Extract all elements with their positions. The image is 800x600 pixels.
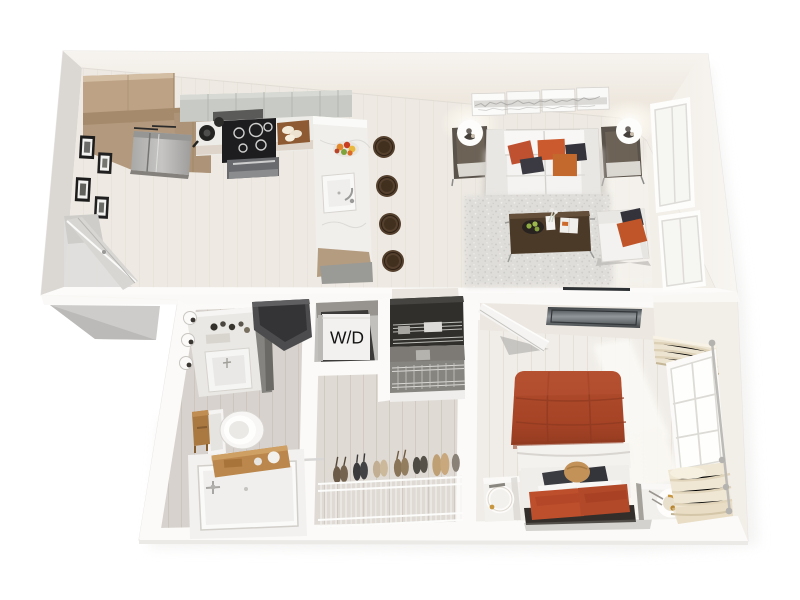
svg-text:W/D: W/D — [330, 328, 364, 348]
